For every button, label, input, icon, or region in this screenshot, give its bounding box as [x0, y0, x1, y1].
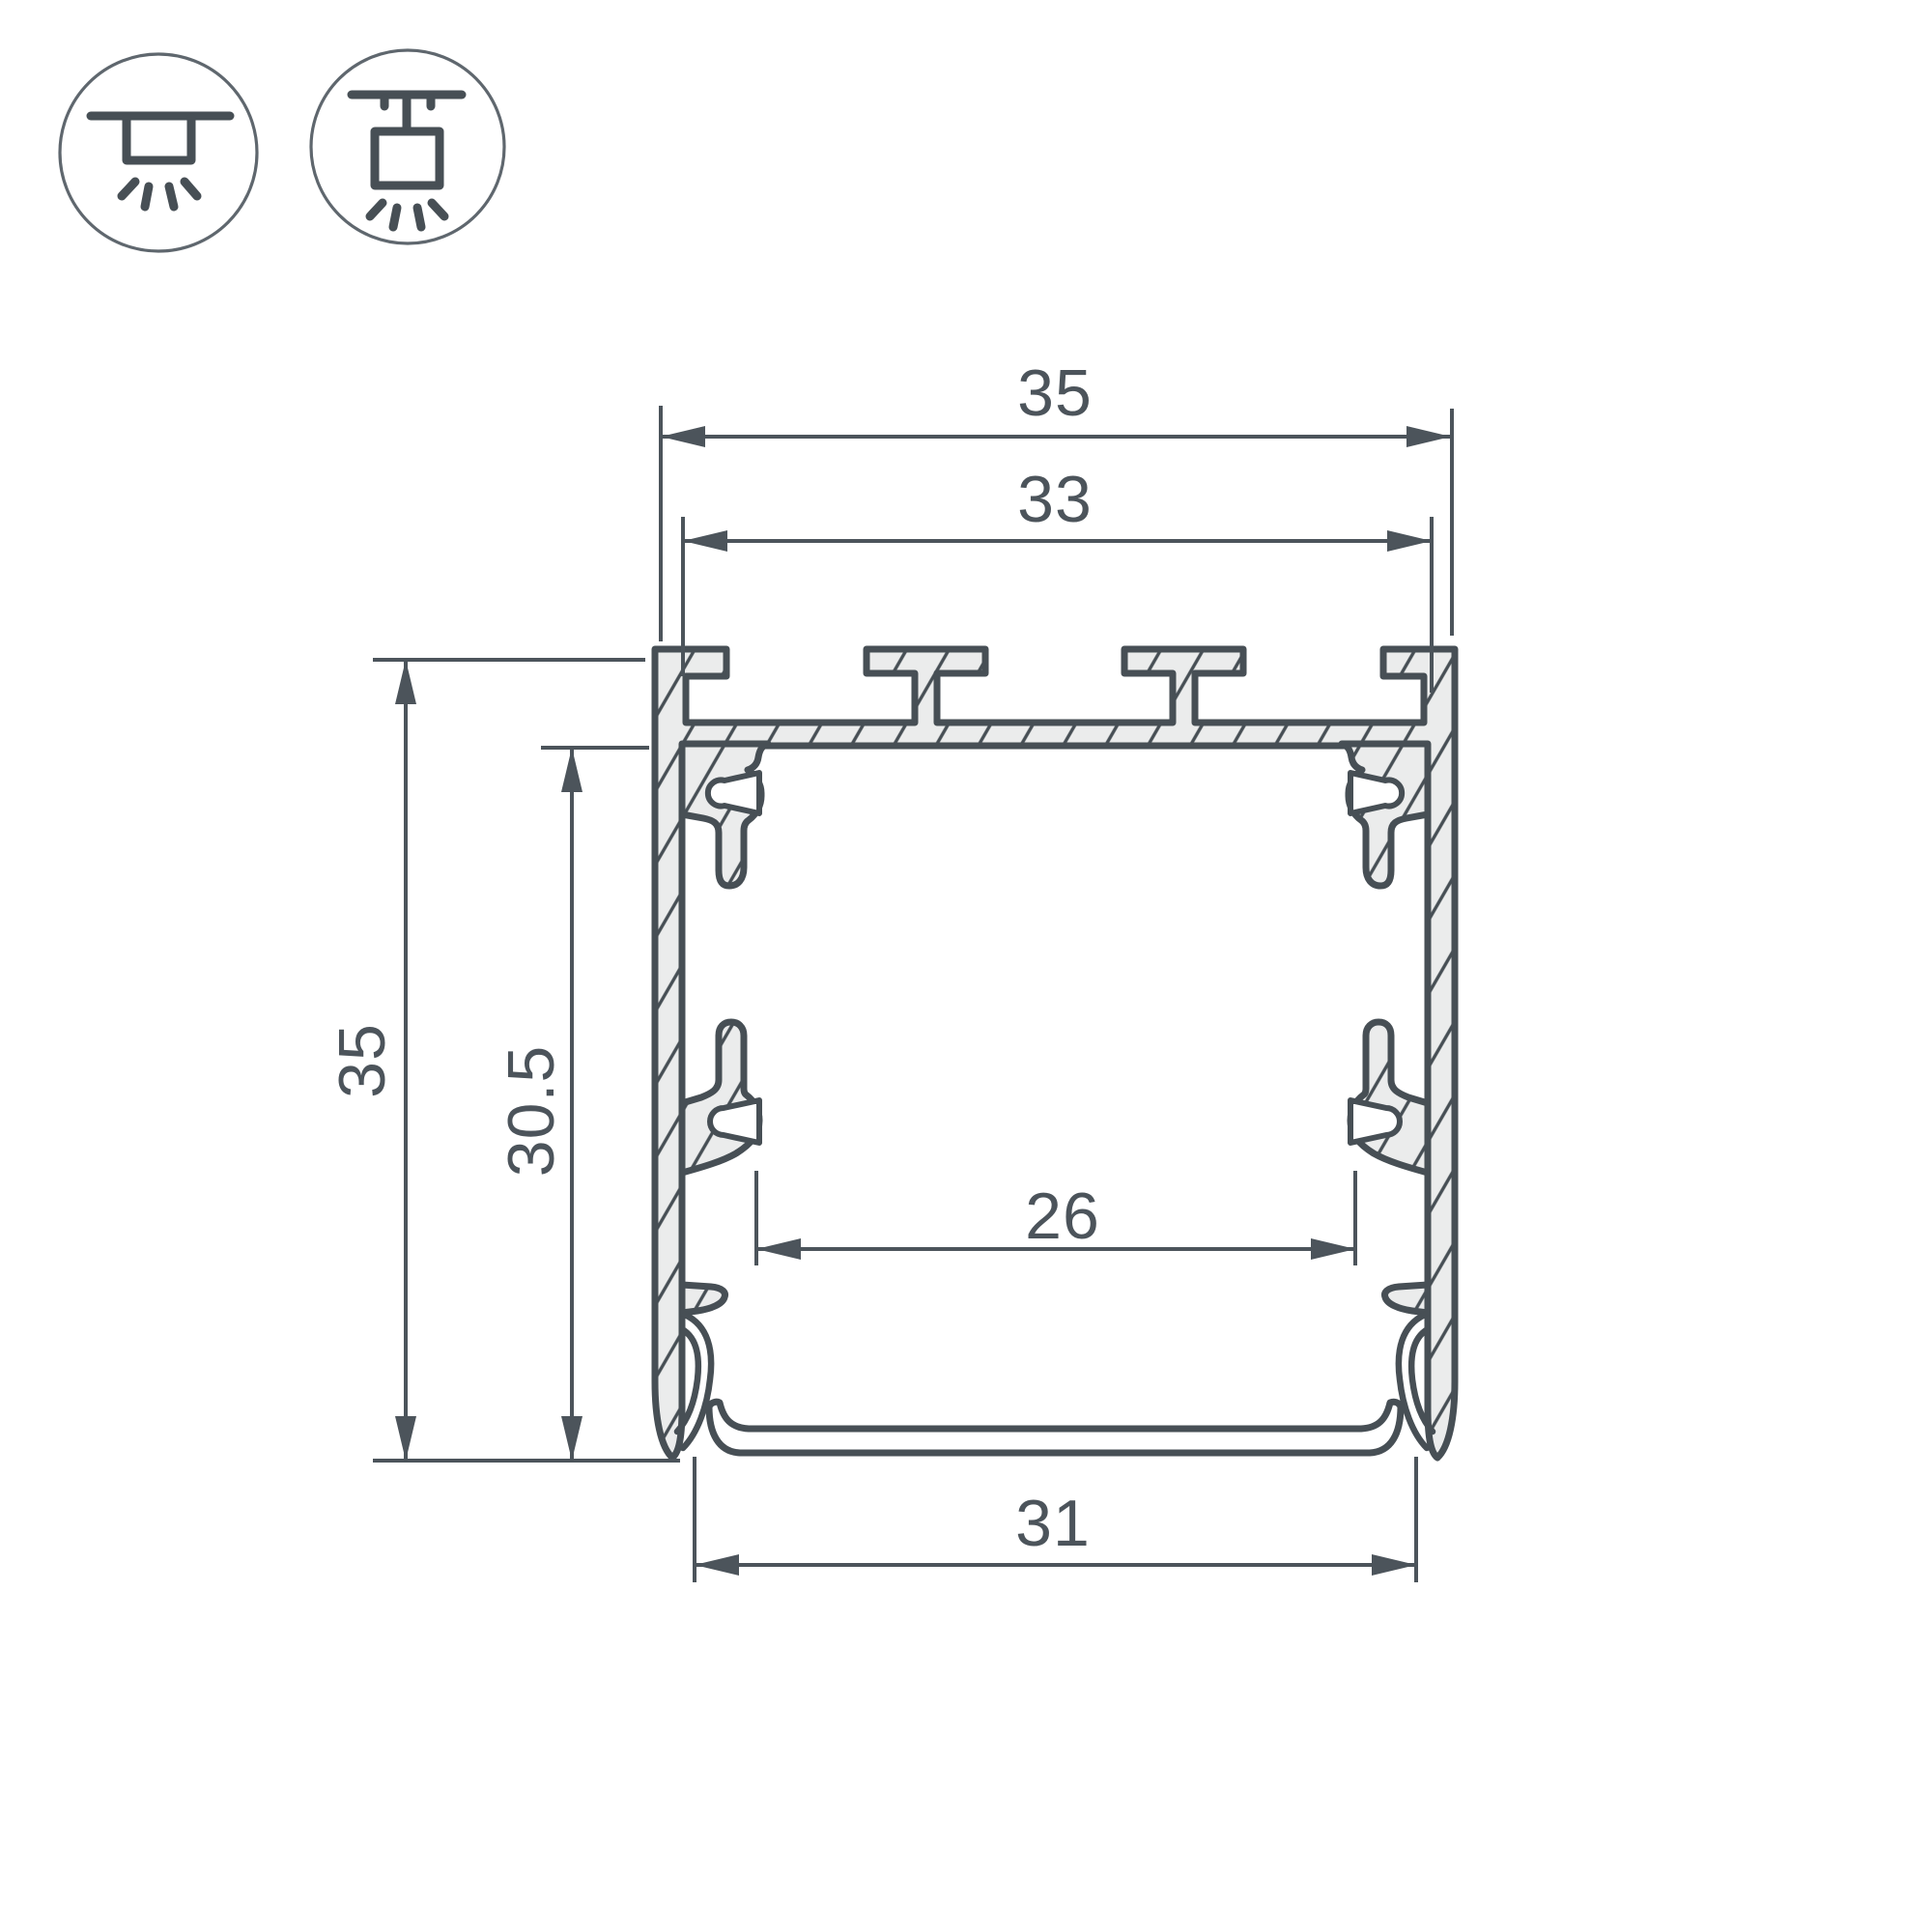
dimension-inner-width: 26	[756, 1171, 1355, 1265]
lower-right-screw-boss	[1350, 1022, 1428, 1173]
dim-label-inner-width: 26	[1025, 1179, 1100, 1253]
surface-mount-icon-circle	[60, 54, 257, 251]
upper-right-screw-port	[1350, 773, 1402, 813]
pendant-mount-icon	[311, 50, 504, 243]
left-support-wing	[682, 1285, 724, 1313]
dim-label-outer-height: 35	[326, 1023, 399, 1098]
upper-left-screw-port	[708, 773, 759, 813]
lower-left-screw-port	[710, 1100, 759, 1143]
right-support-wing	[1385, 1285, 1428, 1313]
technical-drawing-page: 35 33 35 30.5 26 31	[0, 0, 1932, 1932]
dim-label-opening-width: 31	[1015, 1487, 1091, 1560]
diffuser-cover	[709, 1402, 1401, 1453]
dimension-inner-depth: 30.5	[495, 748, 649, 1461]
lower-left-screw-boss	[682, 1022, 759, 1173]
light-rays	[370, 203, 444, 227]
profile-cross-section	[655, 649, 1455, 1458]
dim-label-inner-depth: 30.5	[495, 1045, 568, 1177]
profile-box	[375, 131, 440, 185]
surface-mount-icon	[60, 54, 257, 251]
dimension-opening-width: 31	[695, 1457, 1416, 1582]
profile-body	[655, 649, 1455, 1458]
dim-label-mount-slot-width: 33	[1017, 463, 1093, 536]
led-profile-cross-section-drawing: 35 33 35 30.5 26 31	[0, 0, 1932, 1932]
pendant-mount-icon-circle	[311, 50, 504, 243]
dim-label-outer-width: 35	[1017, 356, 1093, 430]
dimension-mount-slot-width: 33	[683, 463, 1432, 693]
light-rays	[122, 182, 197, 207]
profile-box	[127, 118, 191, 160]
lower-right-screw-port	[1350, 1100, 1400, 1143]
